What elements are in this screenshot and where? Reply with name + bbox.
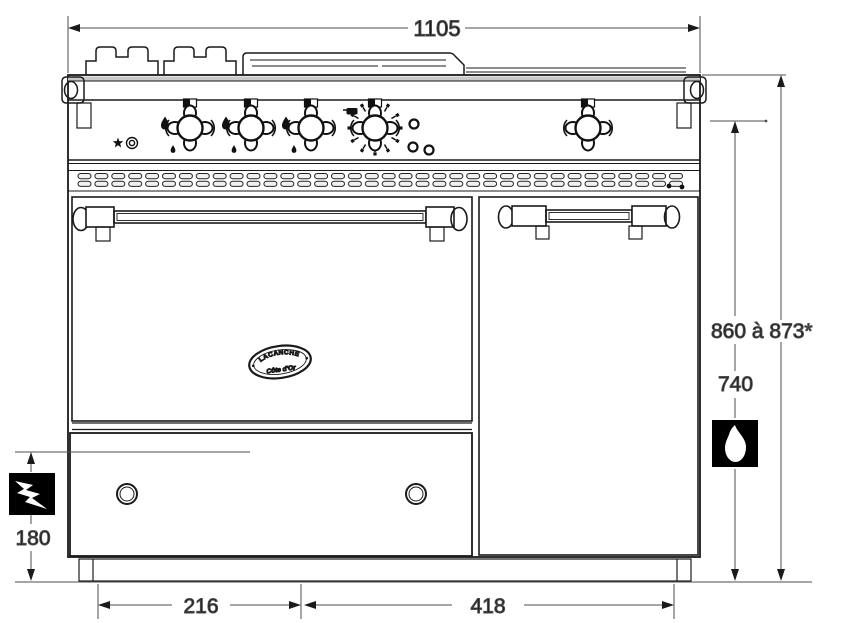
dim-left-section-width-value: 216: [183, 595, 218, 618]
brand-badge: LACANCHE Côte d'Or: [247, 342, 313, 382]
dim-right-section-width: 418: [304, 584, 674, 619]
right-oven-door-handle: [499, 206, 680, 239]
dim-total-width: 1105: [68, 16, 700, 73]
flame-low-icon: [232, 145, 237, 153]
flame-low-icon: [171, 145, 176, 153]
dim-overall-height-value: 860 à 873*: [711, 320, 813, 343]
vent-grille: [77, 172, 685, 189]
indicator-lights: [409, 120, 434, 155]
top-rail-shading: [68, 77, 700, 82]
cooker-front-elevation-drawing: LACANCHE Côte d'Or: [0, 0, 842, 623]
pilot-dot-left: [667, 184, 672, 189]
flame-low-icon: [292, 145, 297, 153]
left-oven-door-handle: [73, 207, 467, 241]
dim-body-height-value: 740: [718, 373, 753, 396]
drawer-knob-left: [117, 484, 137, 504]
right-rail-endcap: [677, 77, 706, 128]
burner-knob-2[interactable]: [222, 99, 275, 153]
igniter-icon: [113, 138, 138, 149]
lightning-icon: [9, 473, 55, 515]
dim-body-height: 740: [710, 120, 767, 581]
burner-knob-1[interactable]: [161, 99, 214, 153]
casserole-icon: [343, 108, 358, 115]
plinth: [79, 559, 691, 581]
flame-high-icon: [282, 117, 290, 130]
burner-knob-3[interactable]: [282, 99, 335, 153]
dim-left-section-width: 216: [98, 584, 301, 619]
flame-high-icon: [222, 117, 230, 130]
dim-right-section-width-value: 418: [470, 595, 505, 618]
dim-overall-height: 860 à 873*: [702, 75, 813, 581]
dim-drawer-height-value: 180: [15, 527, 50, 550]
technical-drawing-page: LACANCHE Côte d'Or: [0, 0, 842, 623]
body-outline: [68, 75, 700, 557]
pilot-dot-right: [680, 185, 685, 190]
control-panel: [113, 99, 612, 156]
simmer-plate: [243, 53, 686, 75]
oven-thermostat-knob[interactable]: [343, 99, 403, 156]
gas-burner-grates: [86, 47, 236, 75]
flame-high-icon: [161, 117, 169, 130]
left-rail-endcap: [62, 77, 91, 128]
right-oven-knob[interactable]: [564, 99, 612, 151]
left-oven-door: [72, 197, 472, 421]
drawer-knob-right: [406, 484, 426, 504]
right-oven-door: [479, 197, 698, 555]
dim-total-width-value: 1105: [413, 16, 460, 41]
flame-icon: [712, 420, 758, 467]
storage-drawer: [70, 433, 472, 556]
dim-drawer-height: 180: [15, 452, 250, 581]
